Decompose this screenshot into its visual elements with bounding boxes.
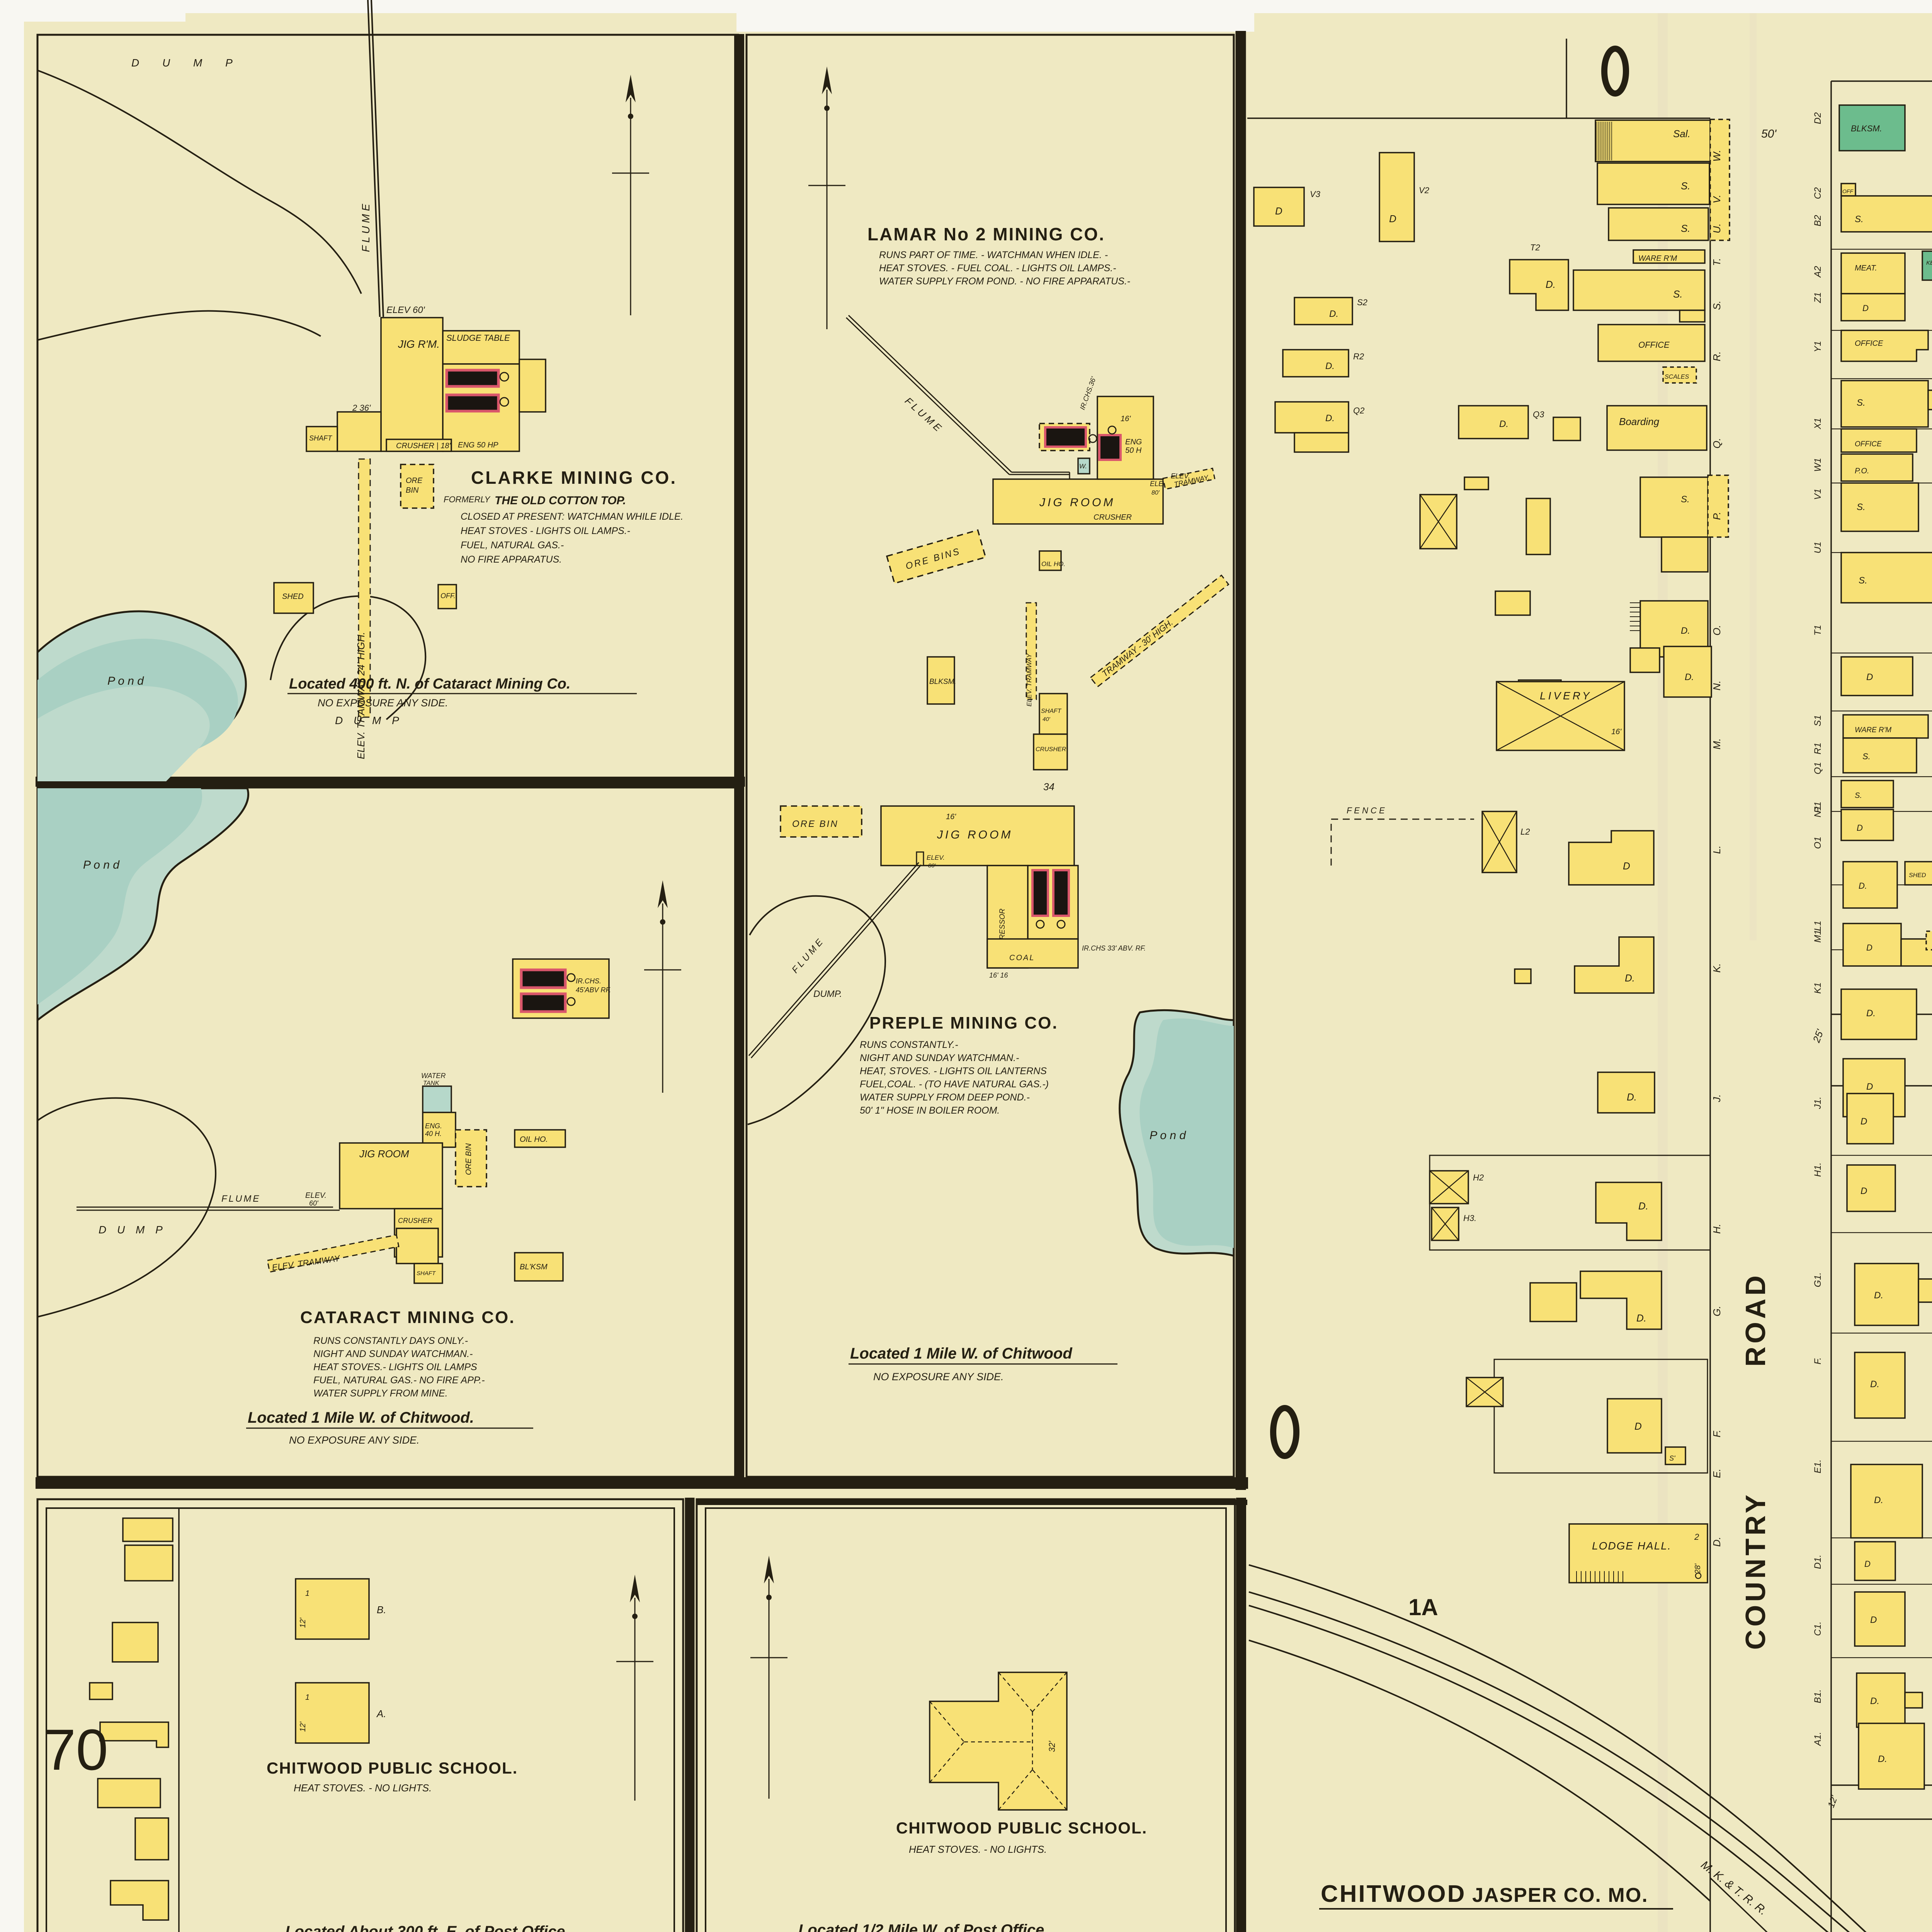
svg-text:NIGHT AND SUNDAY WATCHMAN.-: NIGHT AND SUNDAY WATCHMAN.- <box>313 1349 473 1359</box>
svg-text:S.: S. <box>1857 502 1866 512</box>
svg-text:FUEL, NATURAL GAS.-: FUEL, NATURAL GAS.- <box>461 540 564 551</box>
svg-text:16': 16' <box>1611 728 1622 736</box>
svg-text:FORMERLY: FORMERLY <box>444 495 491 504</box>
svg-text:OIL HO.: OIL HO. <box>520 1135 548 1144</box>
svg-text:NIGHT AND SUNDAY WATCHMAN.-: NIGHT AND SUNDAY WATCHMAN.- <box>860 1053 1019 1063</box>
svg-text:F.: F. <box>1813 1357 1823 1364</box>
svg-text:D.: D. <box>1638 1200 1648 1212</box>
svg-text:B1.: B1. <box>1813 1689 1823 1703</box>
svg-text:E.: E. <box>1711 1469 1723 1478</box>
svg-text:D.: D. <box>1325 413 1335 423</box>
svg-text:RUNS CONSTANTLY DAYS ONLY.-: RUNS CONSTANTLY DAYS ONLY.- <box>313 1335 468 1346</box>
svg-text:D.: D. <box>1625 972 1635 984</box>
svg-text:D U M P: D U M P <box>131 57 243 69</box>
svg-text:1: 1 <box>305 1693 310 1702</box>
svg-text:X1: X1 <box>1813 418 1823 429</box>
svg-text:H1.: H1. <box>1813 1162 1823 1177</box>
svg-text:IR.CHS.: IR.CHS. <box>576 977 601 985</box>
svg-text:S.: S. <box>1857 398 1866 408</box>
svg-text:NO EXPOSURE ANY SIDE.: NO EXPOSURE ANY SIDE. <box>289 1434 420 1446</box>
svg-text:H3.: H3. <box>1463 1213 1476 1223</box>
svg-text:ORE BIN: ORE BIN <box>792 819 838 829</box>
svg-text:CHITWOOD PUBLIC SCHOOL.: CHITWOOD PUBLIC SCHOOL. <box>267 1759 518 1777</box>
svg-text:Sal.: Sal. <box>1673 128 1690 139</box>
svg-text:COAL: COAL <box>1009 954 1035 962</box>
svg-text:DUMP.: DUMP. <box>813 989 842 999</box>
svg-text:OFF.: OFF. <box>440 592 456 600</box>
svg-text:HEAT STOVES.- LIGHTS OIL LAMPS: HEAT STOVES.- LIGHTS OIL LAMPS <box>313 1362 477 1372</box>
svg-text:SLUDGE TABLE: SLUDGE TABLE <box>446 333 510 343</box>
svg-text:OFFICE: OFFICE <box>1855 440 1882 448</box>
svg-text:D: D <box>1861 1186 1867 1196</box>
svg-text:S.: S. <box>1711 301 1723 310</box>
svg-text:HEAT STOVES. - NO LIGHTS.: HEAT STOVES. - NO LIGHTS. <box>909 1844 1047 1855</box>
svg-text:Located 400 ft. N. of Catarac: Located 400 ft. N. of Cataract Mining Co… <box>289 676 570 692</box>
svg-text:D: D <box>1864 1559 1871 1569</box>
svg-text:R2: R2 <box>1353 352 1364 361</box>
svg-text:K.: K. <box>1711 963 1723 973</box>
svg-text:SCALES: SCALES <box>1665 374 1689 380</box>
svg-text:D.: D. <box>1874 1290 1883 1301</box>
svg-text:T.: T. <box>1711 258 1723 266</box>
svg-text:FUEL,COAL. - (TO HAVE NATURAL: FUEL,COAL. - (TO HAVE NATURAL GAS.-) <box>860 1079 1049 1090</box>
svg-text:CRUSHER: CRUSHER <box>398 1217 432 1225</box>
svg-text:D.: D. <box>1329 309 1338 319</box>
svg-text:S.: S. <box>1681 223 1690 234</box>
svg-text:2: 2 <box>1694 1532 1699 1542</box>
svg-text:CRUSHER | 18': CRUSHER | 18' <box>396 442 451 450</box>
svg-text:R1: R1 <box>1813 743 1823 755</box>
svg-text:D.: D. <box>1681 626 1690 636</box>
svg-text:2 36': 2 36' <box>352 403 371 413</box>
svg-text:50 H: 50 H <box>1125 446 1142 455</box>
svg-text:LIVERY: LIVERY <box>1540 690 1592 702</box>
svg-text:ENG 50 HP: ENG 50 HP <box>458 441 498 449</box>
svg-text:S': S' <box>1669 1454 1675 1462</box>
svg-text:D.: D. <box>1685 672 1694 682</box>
svg-text:V.: V. <box>1711 195 1723 204</box>
svg-text:D: D <box>1866 1082 1873 1092</box>
svg-text:Q2: Q2 <box>1353 406 1364 415</box>
svg-text:S.: S. <box>1681 494 1690 505</box>
svg-text:THE OLD COTTON TOP.: THE OLD COTTON TOP. <box>495 494 626 507</box>
svg-text:Z1: Z1 <box>1813 292 1823 303</box>
svg-text:ELEV. TRAMWAY: ELEV. TRAMWAY <box>1026 653 1033 707</box>
svg-text:D.: D. <box>1859 881 1867 891</box>
svg-text:16' 16: 16' 16 <box>989 971 1008 979</box>
svg-text:C2: C2 <box>1813 187 1823 199</box>
svg-text:BLKSM.: BLKSM. <box>1851 124 1882 133</box>
svg-text:J1.: J1. <box>1813 1097 1823 1109</box>
svg-text:ELEV 60': ELEV 60' <box>386 305 425 315</box>
svg-text:L1: L1 <box>1813 921 1823 931</box>
svg-text:NO FIRE APPARATUS.: NO FIRE APPARATUS. <box>461 554 562 565</box>
svg-text:1: 1 <box>305 1589 310 1598</box>
svg-text:P o n d: P o n d <box>107 675 144 687</box>
svg-text:D.: D. <box>1878 1754 1887 1764</box>
svg-text:ROAD: ROAD <box>1740 1272 1771 1367</box>
svg-text:W.: W. <box>1711 150 1723 162</box>
svg-text:32': 32' <box>1047 1741 1057 1752</box>
svg-text:S.: S. <box>1862 752 1871 761</box>
svg-text:12': 12' <box>299 1721 307 1732</box>
svg-text:SHED: SHED <box>282 592 304 601</box>
svg-text:NO EXPOSURE ANY SIDE.: NO EXPOSURE ANY SIDE. <box>318 697 448 709</box>
svg-text:D.: D. <box>1636 1312 1646 1324</box>
svg-text:N.: N. <box>1711 680 1723 690</box>
svg-text:JIG ROOM: JIG ROOM <box>1039 496 1115 509</box>
svg-text:L2: L2 <box>1520 827 1530 837</box>
svg-text:ORE BIN: ORE BIN <box>464 1143 473 1175</box>
svg-text:D.: D. <box>1627 1091 1637 1103</box>
svg-text:S.: S. <box>1855 214 1864 224</box>
svg-text:WATER SUPPLY FROM POND. - N: WATER SUPPLY FROM POND. - NO FIRE APPARA… <box>879 276 1130 287</box>
svg-text:D U M P: D U M P <box>99 1224 167 1236</box>
svg-text:PREPLE MINING CO.: PREPLE MINING CO. <box>869 1014 1058 1032</box>
svg-text:COUNTRY: COUNTRY <box>1740 1492 1771 1650</box>
svg-text:D: D <box>1389 213 1396 224</box>
svg-text:WARE R'M: WARE R'M <box>1638 254 1677 263</box>
svg-text:O.: O. <box>1711 625 1723 635</box>
svg-text:FLUME: FLUME <box>221 1194 260 1204</box>
svg-text:R.: R. <box>1711 351 1723 361</box>
svg-text:K1: K1 <box>1813 982 1823 993</box>
svg-text:A.: A. <box>376 1708 386 1719</box>
svg-text:C1.: C1. <box>1813 1621 1823 1636</box>
svg-text:Q3: Q3 <box>1533 410 1544 419</box>
svg-text:16': 16' <box>1121 415 1131 423</box>
svg-text:50' 1" HOSE IN BOILER ROOM.: 50' 1" HOSE IN BOILER ROOM. <box>860 1105 1000 1116</box>
svg-text:O1: O1 <box>1813 837 1823 849</box>
svg-text:S.: S. <box>1673 288 1683 300</box>
svg-text:S1: S1 <box>1813 715 1823 726</box>
svg-text:SHAFT: SHAFT <box>309 434 333 442</box>
svg-text:ELEV.: ELEV. <box>305 1191 327 1200</box>
svg-text:S.: S. <box>1859 575 1867 586</box>
svg-text:HEAT STOVES - LIGHTS OIL LAMPS: HEAT STOVES - LIGHTS OIL LAMPS.- <box>461 526 630 536</box>
svg-text:WATER SUPPLY FROM DEEP POND.-: WATER SUPPLY FROM DEEP POND.- <box>860 1092 1030 1103</box>
svg-text:TANK: TANK <box>423 1080 440 1087</box>
svg-text:50': 50' <box>1761 128 1777 140</box>
svg-text:SHAFT: SHAFT <box>417 1270 436 1277</box>
svg-text:Located 1 Mile W. of Chitwoo: Located 1 Mile W. of Chitwood <box>850 1345 1073 1362</box>
svg-text:LODGE HALL.: LODGE HALL. <box>1592 1540 1672 1552</box>
svg-text:A1.: A1. <box>1813 1732 1823 1747</box>
svg-text:F L U M E: F L U M E <box>360 204 372 252</box>
svg-text:M1: M1 <box>1813 930 1823 942</box>
svg-text:80': 80' <box>1151 490 1160 496</box>
svg-text:ORE: ORE <box>406 476 423 485</box>
svg-text:F.: F. <box>1711 1430 1723 1437</box>
svg-text:D: D <box>1866 672 1873 682</box>
svg-text:D: D <box>1866 943 1872 952</box>
svg-text:H2: H2 <box>1473 1173 1484 1182</box>
svg-text:CLOSED AT PRESENT: WATCHMAN WH: CLOSED AT PRESENT: WATCHMAN WHILE IDLE. <box>461 511 683 522</box>
svg-text:JIG ROOM: JIG ROOM <box>359 1148 409 1160</box>
svg-text:D1.: D1. <box>1813 1554 1823 1569</box>
svg-text:D.: D. <box>1874 1495 1883 1505</box>
svg-text:60': 60' <box>309 1199 318 1207</box>
svg-text:KETTLE: KETTLE <box>1926 260 1932 266</box>
svg-text:L.: L. <box>1711 845 1723 854</box>
svg-text:D: D <box>1857 823 1863 833</box>
svg-text:D: D <box>1634 1420 1642 1432</box>
svg-text:16': 16' <box>946 813 956 821</box>
svg-text:J.: J. <box>1711 1094 1723 1102</box>
svg-text:D U M P: D U M P <box>335 714 403 726</box>
svg-text:OFFICE: OFFICE <box>1855 339 1883 348</box>
svg-text:D.: D. <box>1870 1696 1879 1706</box>
svg-text:Y1: Y1 <box>1813 341 1823 352</box>
svg-text:12': 12' <box>299 1617 307 1628</box>
svg-text:U.: U. <box>1711 223 1723 233</box>
svg-text:80': 80' <box>928 862 936 869</box>
svg-text:V2: V2 <box>1419 185 1429 195</box>
svg-text:Boarding: Boarding <box>1619 416 1660 427</box>
svg-text:ELEV. TRAMWAY 24' HIGH.: ELEV. TRAMWAY 24' HIGH. <box>355 632 367 759</box>
svg-text:D: D <box>1862 303 1869 313</box>
svg-text:B.: B. <box>377 1604 386 1616</box>
svg-text:D2: D2 <box>1813 112 1823 124</box>
svg-text:Q.: Q. <box>1711 438 1723 448</box>
svg-text:OFFICE: OFFICE <box>1638 340 1670 350</box>
svg-text:U1: U1 <box>1813 542 1823 554</box>
svg-text:D.: D. <box>1546 279 1556 290</box>
svg-text:MEAT.: MEAT. <box>1855 264 1877 272</box>
svg-text:CRUSHER: CRUSHER <box>1094 513 1132 522</box>
svg-text:W1: W1 <box>1813 458 1823 472</box>
svg-text:WATER: WATER <box>421 1072 446 1080</box>
svg-text:IR.CHS 33' ABV. RF.: IR.CHS 33' ABV. RF. <box>1082 944 1146 952</box>
svg-text:CATARACT MINING CO.: CATARACT MINING CO. <box>300 1308 515 1327</box>
svg-text:ENG: ENG <box>1125 438 1142 446</box>
svg-text:D: D <box>1861 1116 1867 1127</box>
svg-text:WATER SUPPLY FROM MINE.: WATER SUPPLY FROM MINE. <box>313 1388 448 1399</box>
svg-text:BLKSM.: BLKSM. <box>929 678 956 686</box>
svg-text:JIG ROOM: JIG ROOM <box>937 828 1013 841</box>
svg-text:D: D <box>1623 860 1630 872</box>
svg-text:SHED: SHED <box>1909 872 1926 879</box>
svg-text:CRUSHER: CRUSHER <box>1036 746 1066 753</box>
svg-text:ELEV.: ELEV. <box>927 854 945 861</box>
svg-text:H.: H. <box>1711 1224 1723 1234</box>
svg-text:S2: S2 <box>1357 298 1367 307</box>
svg-text:D.: D. <box>1325 361 1335 371</box>
svg-text:V3: V3 <box>1310 189 1321 199</box>
svg-text:D.: D. <box>1711 1537 1723 1547</box>
svg-text:Located 1 Mile W. of Chitwoo: Located 1 Mile W. of Chitwood. <box>248 1409 474 1426</box>
svg-text:D: D <box>1870 1615 1877 1625</box>
svg-text:OIL HO.: OIL HO. <box>1041 560 1065 568</box>
svg-text:S.: S. <box>1681 180 1690 192</box>
svg-text:40 H.: 40 H. <box>425 1130 442 1138</box>
svg-text:CLARKE MINING CO.: CLARKE MINING CO. <box>471 468 677 488</box>
svg-text:HEAT STOVES. - NO LIGHTS.: HEAT STOVES. - NO LIGHTS. <box>294 1782 432 1794</box>
svg-text:34: 34 <box>1043 781 1054 793</box>
svg-text:45'ABV RF.: 45'ABV RF. <box>576 986 611 994</box>
svg-text:W.: W. <box>1079 463 1087 470</box>
svg-text:40': 40' <box>1043 716 1051 723</box>
svg-text:P.: P. <box>1711 512 1723 520</box>
svg-text:Located About 300 ft. E. of: Located About 300 ft. E. of Post Office. <box>285 1923 570 1932</box>
svg-text:LAMAR No 2 MINING CO.: LAMAR No 2 MINING CO. <box>867 224 1105 244</box>
svg-text:JIG R'M.: JIG R'M. <box>398 338 440 350</box>
svg-text:SHAFT: SHAFT <box>1041 708 1062 714</box>
svg-text:D.: D. <box>1866 1008 1876 1019</box>
svg-text:HEAT, STOVES. - LIGHTS OIL LAN: HEAT, STOVES. - LIGHTS OIL LANTERNS <box>860 1066 1047 1077</box>
svg-text:E1.: E1. <box>1813 1459 1823 1473</box>
svg-text:P o n d: P o n d <box>1150 1129 1186 1142</box>
svg-text:JASPER CO. MO.: JASPER CO. MO. <box>1472 1884 1648 1906</box>
svg-text:RUNS PART OF TIME. - WATCHM: RUNS PART OF TIME. - WATCHMAN WHEN IDLE.… <box>879 250 1108 260</box>
svg-text:A2: A2 <box>1813 266 1823 278</box>
svg-text:WARE R'M: WARE R'M <box>1855 726 1891 734</box>
svg-text:T2: T2 <box>1530 243 1540 252</box>
svg-text:CHITWOOD: CHITWOOD <box>1321 1881 1466 1907</box>
svg-text:S.: S. <box>1855 791 1862 800</box>
svg-text:HEAT STOVES. - FUEL COAL. -: HEAT STOVES. - FUEL COAL. - LIGHTS OIL L… <box>879 263 1116 274</box>
svg-text:70: 70 <box>44 1717 108 1782</box>
svg-text:M.: M. <box>1711 738 1723 750</box>
svg-text:G1.: G1. <box>1813 1272 1823 1287</box>
svg-text:OFF: OFF <box>1842 188 1854 194</box>
svg-text:ENG.: ENG. <box>425 1122 442 1130</box>
svg-text:Q1: Q1 <box>1813 762 1823 774</box>
svg-text:BL'KSM: BL'KSM <box>520 1263 548 1271</box>
svg-text:BIN: BIN <box>406 486 419 495</box>
svg-text:1A: 1A <box>1408 1594 1438 1620</box>
svg-text:P o n d: P o n d <box>83 859 120 871</box>
svg-text:NO EXPOSURE ANY SIDE.: NO EXPOSURE ANY SIDE. <box>873 1371 1004 1383</box>
svg-text:B2: B2 <box>1813 215 1823 226</box>
svg-text:28': 28' <box>1694 1563 1702 1574</box>
svg-text:RUNS CONSTANTLY.-: RUNS CONSTANTLY.- <box>860 1039 958 1050</box>
svg-text:FUEL, NATURAL GAS.- NO FIRE AP: FUEL, NATURAL GAS.- NO FIRE APP.- <box>313 1375 485 1386</box>
svg-text:D: D <box>1275 205 1282 217</box>
svg-text:N1: N1 <box>1813 806 1823 818</box>
svg-text:D.: D. <box>1499 419 1509 429</box>
svg-text:T1: T1 <box>1813 625 1823 636</box>
svg-text:P.O.: P.O. <box>1855 467 1869 475</box>
svg-text:V1: V1 <box>1813 488 1823 500</box>
svg-text:F E N C E: F E N C E <box>1347 806 1385 815</box>
svg-text:Located 1/2 Mile W. of Pos: Located 1/2 Mile W. of Post Office. <box>798 1922 1049 1932</box>
svg-text:G.: G. <box>1711 1306 1723 1316</box>
svg-text:D.: D. <box>1870 1379 1879 1389</box>
svg-text:CHITWOOD PUBLIC SCHOOL.: CHITWOOD PUBLIC SCHOOL. <box>896 1819 1147 1837</box>
